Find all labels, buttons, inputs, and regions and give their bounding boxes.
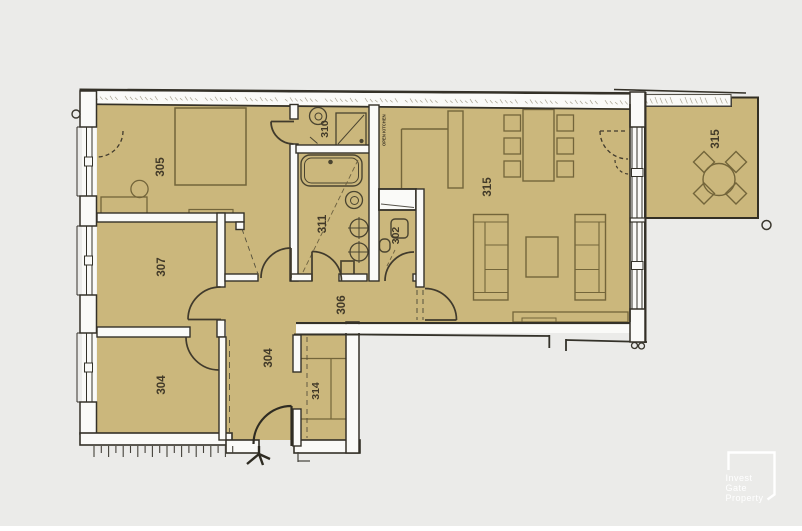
svg-text:304: 304 [263, 348, 275, 368]
svg-text:302: 302 [390, 227, 402, 245]
svg-text:310: 310 [319, 120, 331, 138]
svg-text:Gate: Gate [726, 483, 748, 493]
svg-text:Invest: Invest [726, 473, 753, 483]
svg-text:304: 304 [156, 375, 168, 395]
svg-text:315: 315 [482, 177, 494, 197]
svg-text:306: 306 [336, 295, 348, 314]
svg-text:311: 311 [317, 214, 329, 233]
svg-text:307: 307 [156, 257, 168, 276]
svg-text:315: 315 [710, 129, 722, 149]
svg-text:OPEN KITCHEN: OPEN KITCHEN [382, 114, 387, 146]
svg-text:Property: Property [726, 493, 764, 503]
svg-text:305: 305 [155, 157, 167, 177]
svg-text:314: 314 [310, 382, 322, 400]
